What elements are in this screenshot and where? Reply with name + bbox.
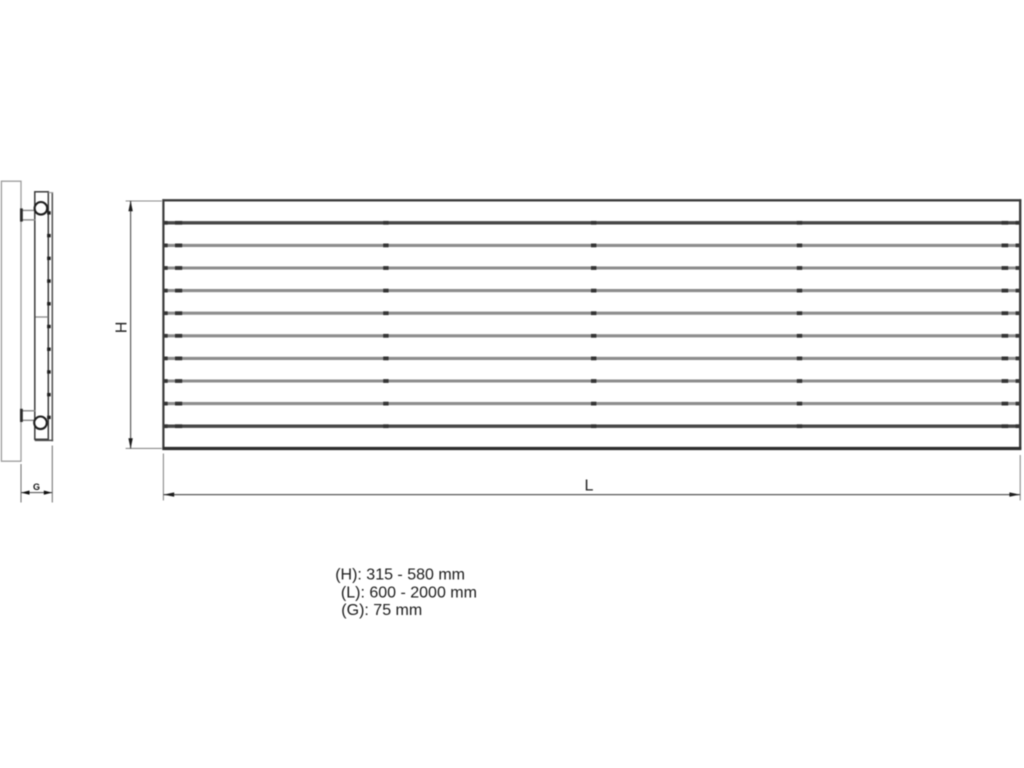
svg-text:(G): 75 mm: (G): 75 mm <box>341 602 422 619</box>
svg-text:(L): 600 - 2000 mm: (L): 600 - 2000 mm <box>341 585 477 602</box>
svg-text:(H): 315 - 580 mm: (H): 315 - 580 mm <box>335 567 465 584</box>
svg-text:G: G <box>33 482 40 492</box>
svg-text:L: L <box>585 477 594 494</box>
svg-text:H: H <box>114 322 131 334</box>
